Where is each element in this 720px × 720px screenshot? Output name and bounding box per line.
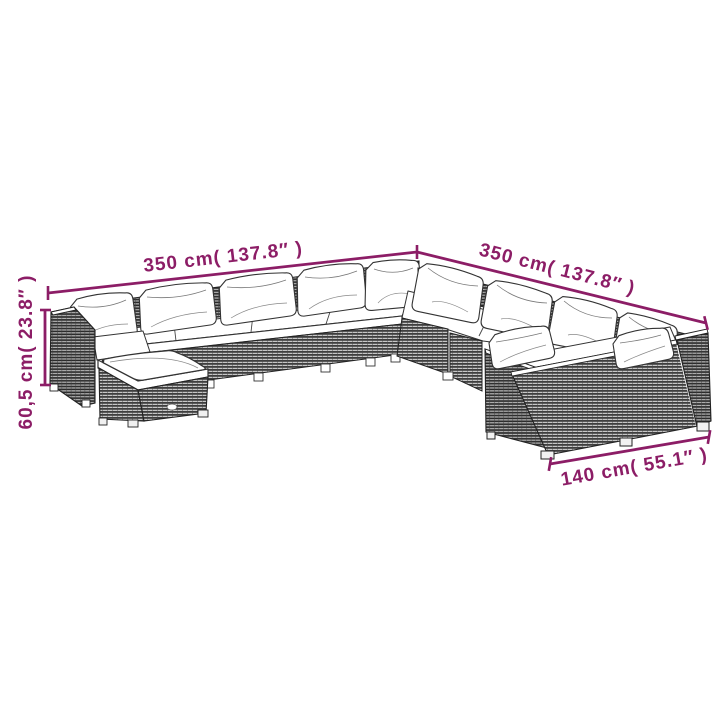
svg-text:60,5 cm( 23.8″ ): 60,5 cm( 23.8″ )	[16, 274, 37, 429]
